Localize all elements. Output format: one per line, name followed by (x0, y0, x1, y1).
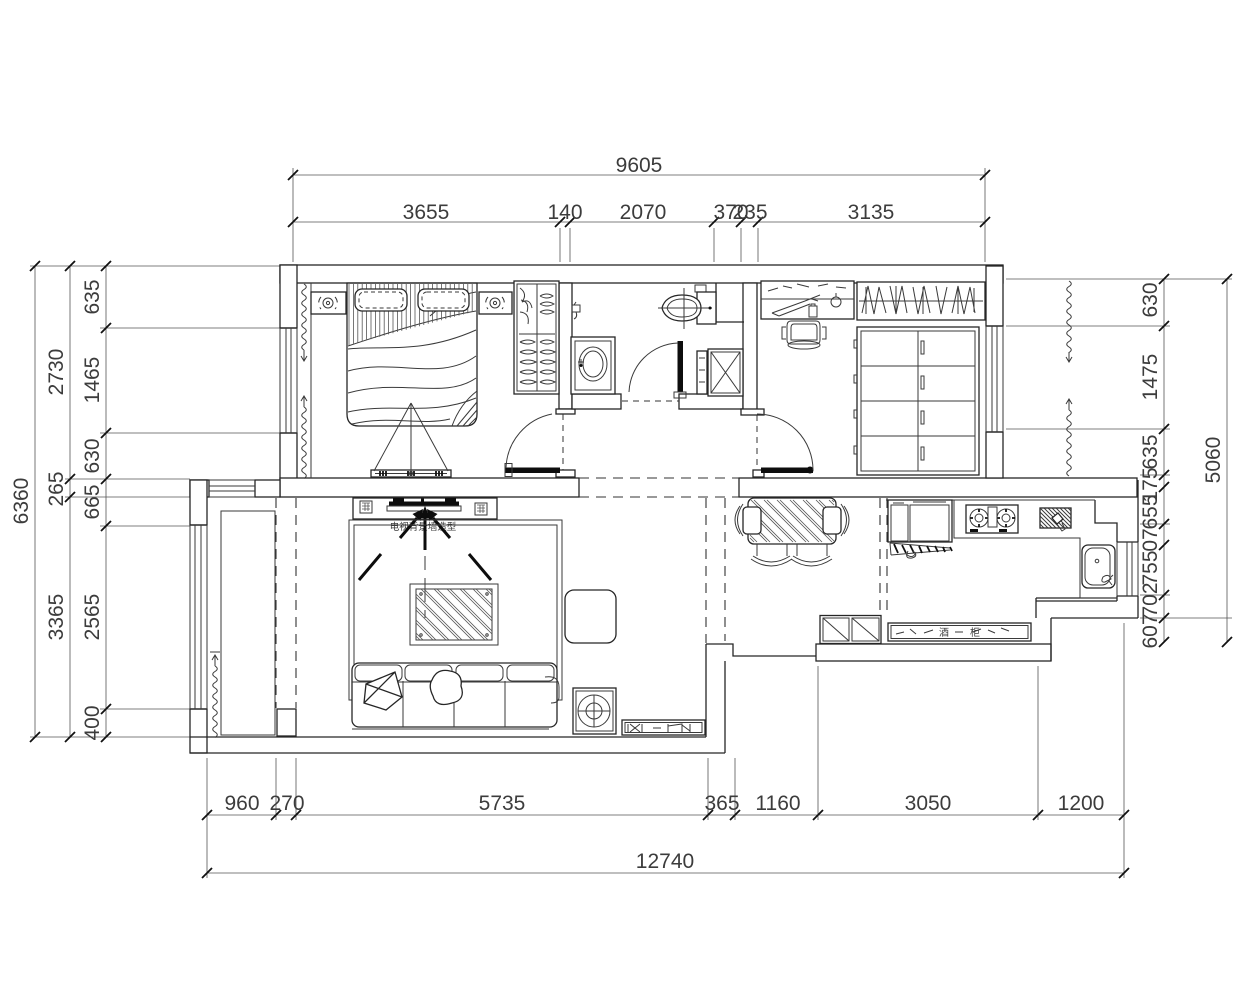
svg-text:140: 140 (547, 201, 582, 224)
svg-text:235: 235 (732, 201, 767, 224)
svg-text:607: 607 (1139, 613, 1162, 648)
svg-text:755: 755 (1139, 550, 1162, 585)
svg-text:3365: 3365 (45, 594, 68, 641)
svg-text:1475: 1475 (1139, 354, 1162, 401)
svg-text:电视背景墙造型: 电视背景墙造型 (390, 521, 457, 533)
svg-text:07: 07 (1139, 528, 1162, 551)
svg-text:702: 702 (1139, 582, 1162, 617)
svg-text:3050: 3050 (905, 792, 952, 815)
svg-text:3135: 3135 (848, 201, 895, 224)
svg-text:630: 630 (81, 438, 104, 473)
svg-text:1200: 1200 (1058, 792, 1105, 815)
svg-text:12740: 12740 (636, 850, 694, 873)
svg-text:655: 655 (1139, 494, 1162, 529)
svg-text:5735: 5735 (479, 792, 526, 815)
svg-text:酒: 酒 (939, 627, 949, 639)
svg-text:2565: 2565 (81, 594, 104, 641)
svg-text:400: 400 (81, 705, 104, 740)
svg-text:1160: 1160 (755, 792, 800, 815)
svg-text:1465: 1465 (81, 357, 104, 404)
svg-text:3655: 3655 (403, 201, 450, 224)
svg-text:2070: 2070 (620, 201, 667, 224)
svg-text:柜: 柜 (970, 626, 980, 639)
svg-text:365: 365 (704, 792, 739, 815)
svg-text:6360: 6360 (10, 478, 33, 525)
svg-text:2730: 2730 (45, 349, 68, 396)
svg-text:5060: 5060 (1202, 437, 1225, 484)
svg-text:635: 635 (81, 279, 104, 314)
svg-text:665: 665 (81, 484, 104, 519)
svg-text:630: 630 (1139, 282, 1162, 317)
svg-text:9605: 9605 (616, 154, 663, 177)
svg-text:270: 270 (269, 792, 304, 815)
svg-text:265: 265 (45, 471, 68, 506)
svg-text:635: 635 (1139, 434, 1162, 469)
svg-text:960: 960 (224, 792, 259, 815)
